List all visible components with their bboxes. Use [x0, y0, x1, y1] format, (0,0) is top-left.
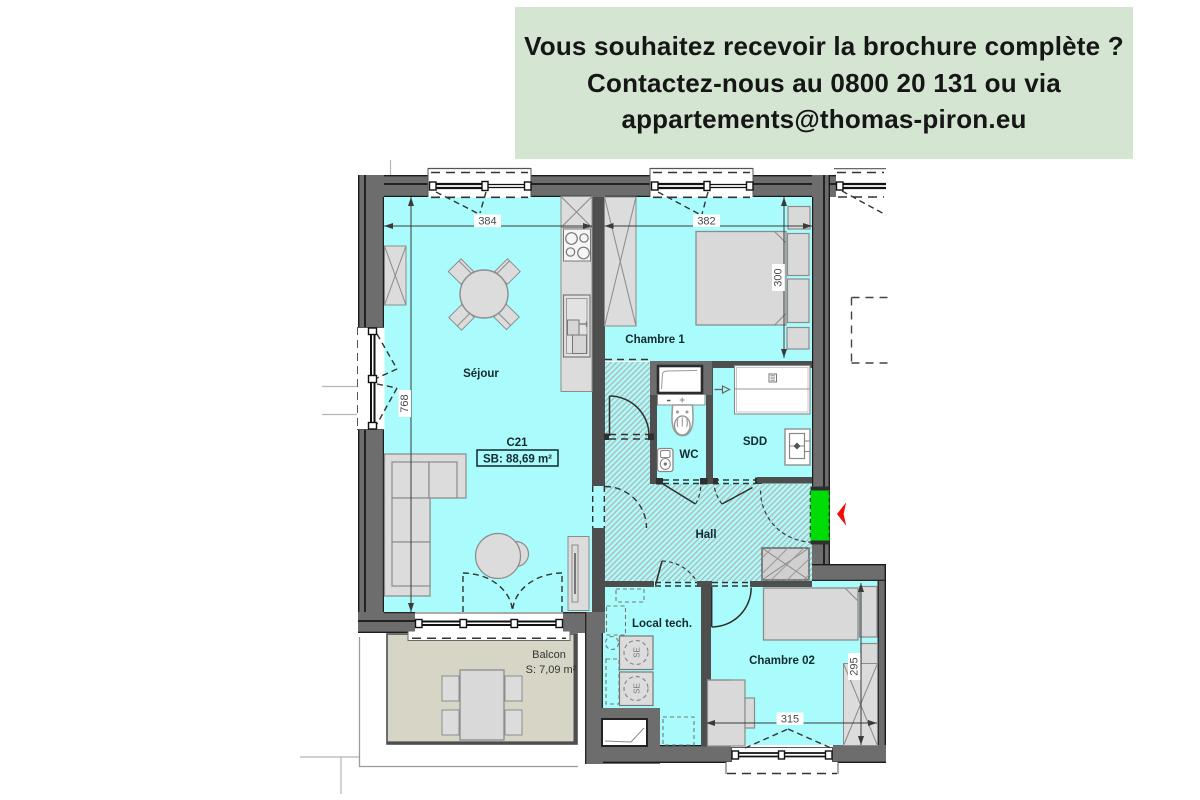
svg-text:384: 384: [478, 216, 496, 228]
svg-text:WC: WC: [679, 449, 698, 461]
svg-text:768: 768: [399, 394, 411, 412]
svg-text:SDD: SDD: [743, 436, 767, 448]
svg-text:SB: 88,69 m²: SB: 88,69 m²: [483, 454, 552, 466]
svg-text:315: 315: [781, 714, 799, 726]
svg-text:300: 300: [772, 268, 784, 286]
svg-text:382: 382: [697, 216, 715, 228]
svg-text:Séjour: Séjour: [463, 368, 499, 380]
svg-text:Chambre 1: Chambre 1: [625, 334, 685, 346]
svg-text:SE: SE: [633, 683, 642, 694]
svg-text:Local tech.: Local tech.: [632, 618, 692, 630]
svg-text:Balcon: Balcon: [532, 649, 566, 661]
svg-text:C21: C21: [506, 437, 528, 449]
svg-text:295: 295: [848, 657, 860, 675]
svg-text:SE: SE: [633, 647, 642, 658]
svg-text:Chambre 02: Chambre 02: [749, 655, 815, 667]
svg-text:Hall: Hall: [695, 529, 716, 541]
svg-text:S: 7,09 m²: S: 7,09 m²: [526, 664, 577, 676]
